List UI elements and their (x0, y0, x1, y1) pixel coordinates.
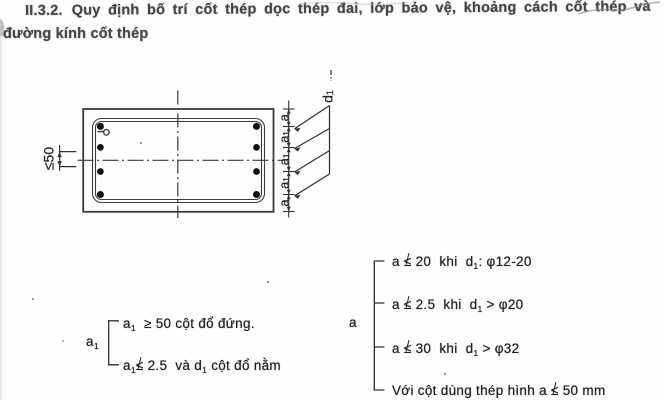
svg-text:a1: a1 (276, 177, 291, 189)
svg-text:a: a (276, 199, 291, 207)
svg-text:a1: a1 (276, 131, 291, 143)
svg-text:d1: d1 (320, 90, 336, 103)
svg-text:a: a (276, 113, 291, 121)
svg-text:≤50: ≤50 (41, 147, 57, 170)
svg-text:a1: a1 (276, 153, 291, 165)
